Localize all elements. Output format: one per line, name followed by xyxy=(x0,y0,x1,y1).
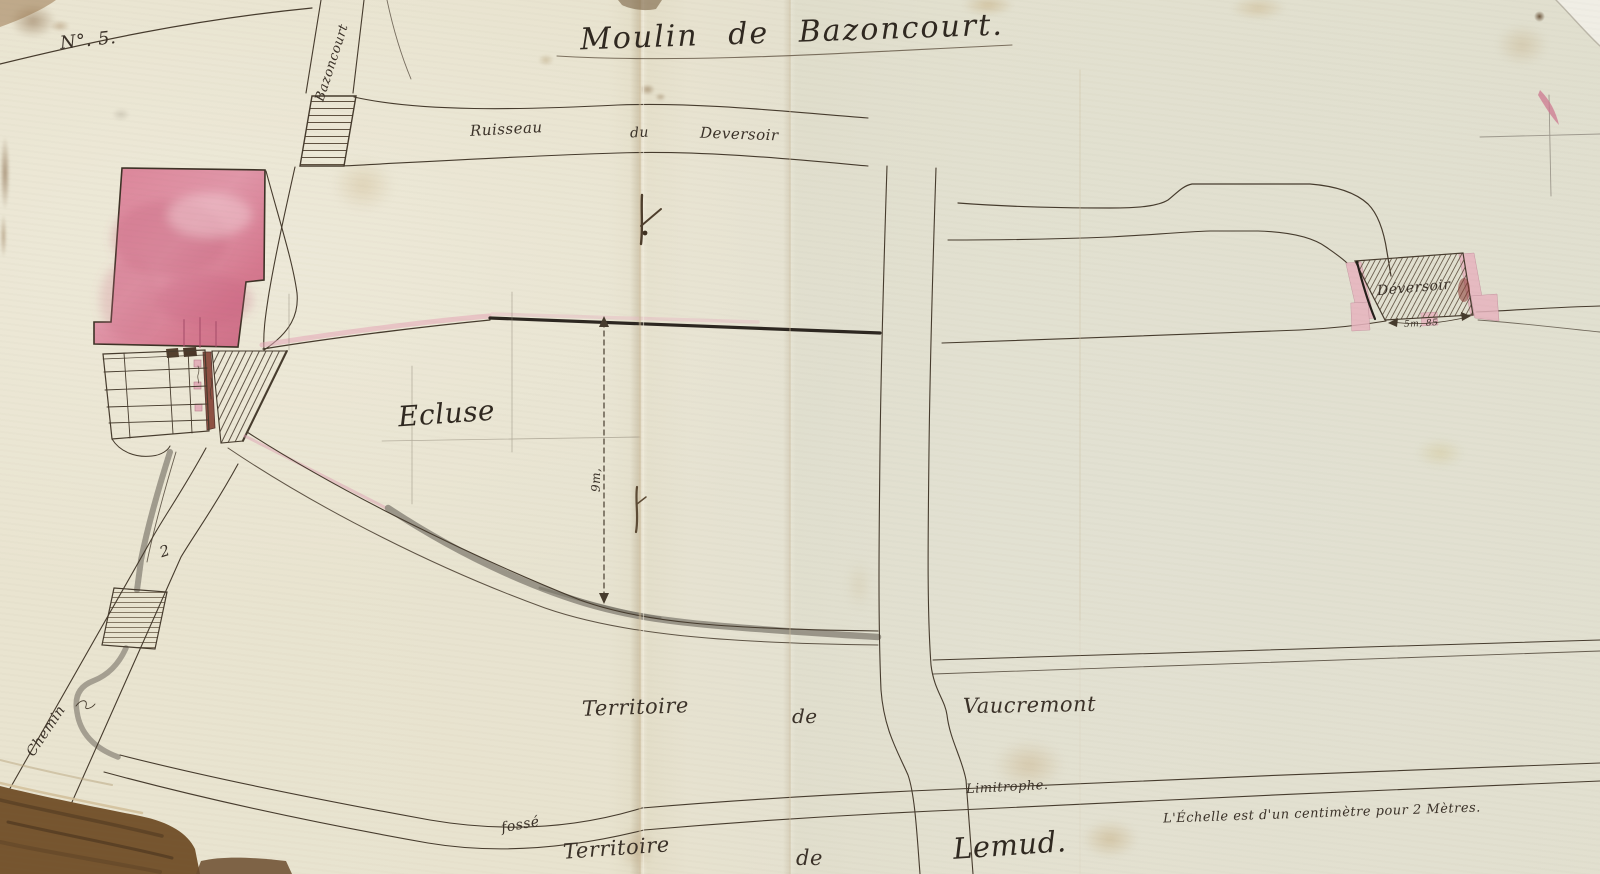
pencil-lines-right xyxy=(1480,95,1600,196)
mill-building xyxy=(94,168,265,347)
title-underline xyxy=(557,45,1012,59)
bridge-hatched-left xyxy=(102,588,167,649)
dashed-dimension-line xyxy=(599,316,609,604)
tailrace xyxy=(228,432,878,645)
boundary-limitrophe xyxy=(642,763,1600,830)
mill-yard-line xyxy=(264,171,297,350)
fold-creases xyxy=(636,0,1080,874)
headrace xyxy=(262,314,880,349)
millrace-right xyxy=(942,184,1600,343)
stream-vertical xyxy=(879,166,973,874)
stream-ruisseau xyxy=(342,97,868,166)
plan-drawing xyxy=(0,0,1600,874)
bridge-hatched-top xyxy=(300,96,356,166)
red-mark xyxy=(1538,90,1559,125)
field-lines xyxy=(933,640,1600,674)
ditch-fosse-lines xyxy=(104,755,644,849)
paper-tear-corner xyxy=(1556,0,1600,46)
boundary-line xyxy=(0,8,312,64)
pencil-lines xyxy=(289,292,640,504)
plan-photo: N°. 5. Moulin de Bazoncourt. Bazoncourt … xyxy=(0,0,1600,874)
weir-structure xyxy=(1346,253,1499,331)
road-bazoncourt xyxy=(264,0,411,350)
